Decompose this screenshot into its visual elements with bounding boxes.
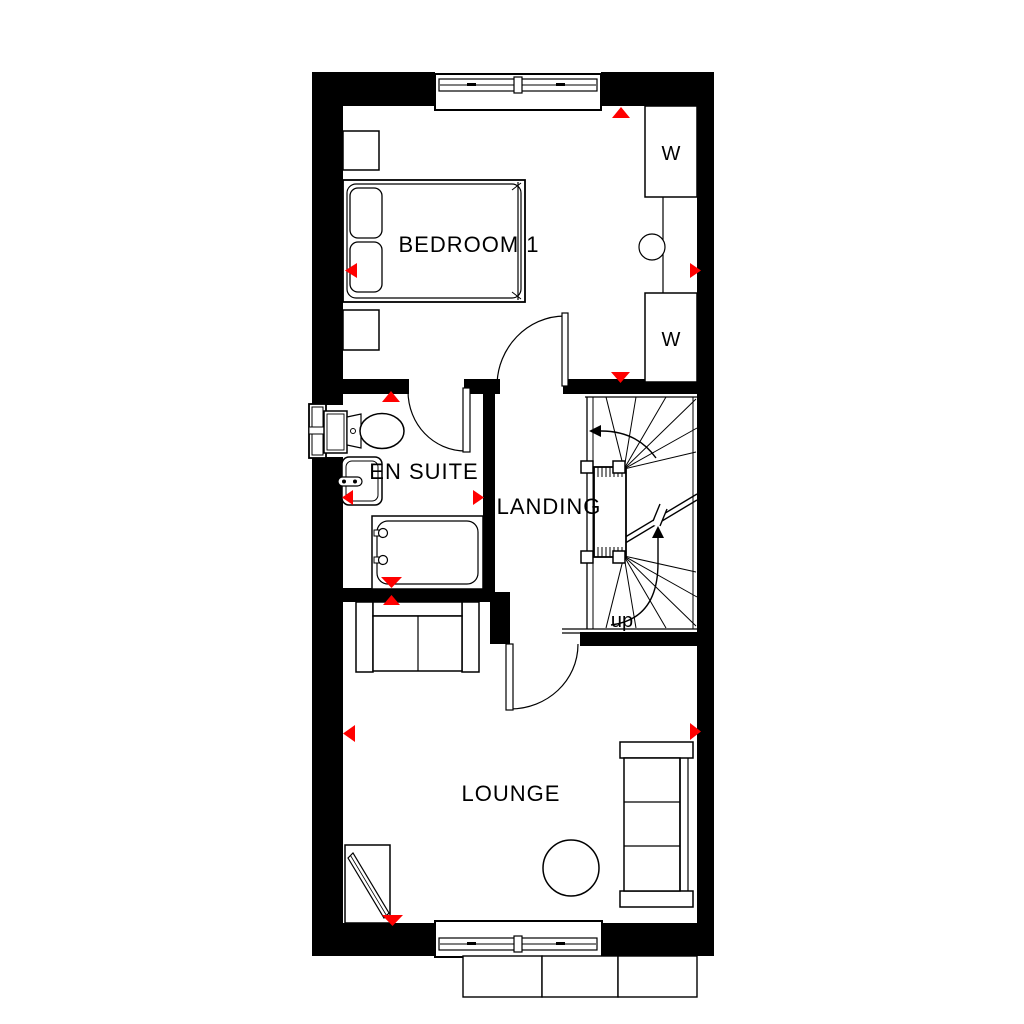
door-swing-arc — [497, 316, 565, 386]
window-bottom — [435, 921, 602, 957]
sofa-two-seat — [356, 602, 479, 672]
bedside-table-top — [343, 131, 379, 170]
floor-plan: BEDROOM 1 EN SUITE LANDING LOUNGE W W up — [0, 0, 1024, 1024]
door-leaf — [463, 388, 470, 452]
bedroom-door — [497, 313, 568, 386]
bedside-table-bottom — [343, 310, 379, 350]
stairs-up-label: up — [611, 610, 633, 632]
door-leaf — [506, 644, 513, 710]
wardrobe-knob — [639, 234, 665, 260]
window-top — [435, 74, 601, 110]
wardrobe-bottom-label: W — [662, 329, 681, 351]
stair-arrowhead-left-icon — [589, 425, 601, 437]
ensuite-door — [408, 388, 470, 452]
bedroom1-label: BEDROOM 1 — [398, 232, 539, 257]
marker-left-icon — [343, 725, 355, 742]
patio-slabs — [463, 956, 697, 997]
room-labels: BEDROOM 1 EN SUITE LANDING LOUNGE W W up — [369, 143, 680, 806]
toilet-icon — [324, 411, 404, 453]
door-leaf — [562, 313, 568, 386]
stair-arrowhead-up-icon — [652, 526, 664, 538]
door-swing-arc — [510, 644, 578, 709]
marker-up-icon — [612, 107, 630, 118]
marker-right-icon — [473, 490, 484, 505]
ensuite-label: EN SUITE — [369, 459, 478, 484]
en-suite — [324, 388, 483, 589]
tv-unit — [345, 845, 390, 923]
lounge — [345, 602, 693, 923]
pillow — [350, 188, 382, 238]
lounge-door — [506, 644, 578, 710]
door-swing-arc — [408, 391, 466, 451]
round-table — [543, 840, 599, 896]
basin-tap — [338, 477, 362, 486]
floor-plan-drawing: BEDROOM 1 EN SUITE LANDING LOUNGE W W up — [0, 0, 1024, 1024]
wardrobe-top-label: W — [662, 143, 681, 165]
sofa-three-seat — [620, 742, 693, 907]
stairs-bottom-wall — [580, 632, 714, 646]
lounge-label: LOUNGE — [462, 781, 561, 806]
landing-label: LANDING — [497, 494, 602, 519]
